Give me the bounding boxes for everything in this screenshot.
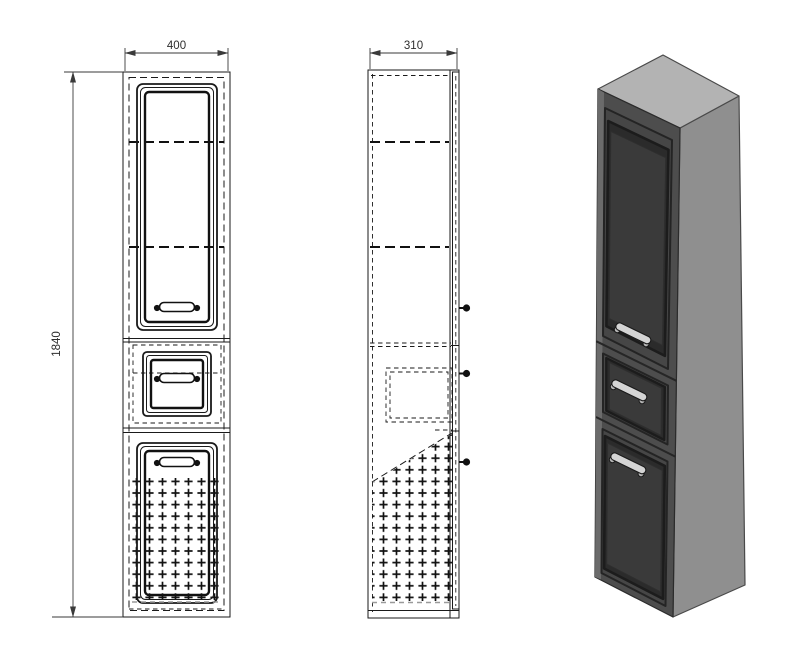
- technical-drawing-canvas: 400 310 1840: [0, 0, 800, 665]
- dim-height-label: 1840: [51, 331, 63, 357]
- knob-ball: [463, 304, 470, 311]
- perspective-top-door: [603, 108, 672, 369]
- handle-grip: [160, 303, 195, 312]
- drawer-panel-recess: [151, 360, 203, 408]
- door-panel: [609, 131, 666, 345]
- basket-handle: [154, 458, 200, 467]
- handle-grip: [160, 374, 195, 383]
- handle-grip: [160, 458, 195, 467]
- side-drawer-hidden-box-inner: [390, 372, 448, 418]
- side-drawer-hidden-box-outer: [386, 368, 452, 422]
- front-drawer: [133, 345, 221, 423]
- side-handle-knob-drawer: [459, 370, 470, 377]
- door-handle: [154, 303, 200, 312]
- door-panel-recess: [145, 92, 209, 322]
- side-basket-weave-pattern: [372, 434, 452, 601]
- door-frame-mid: [141, 88, 214, 327]
- dimension-width: 400: [125, 40, 228, 71]
- dimension-height: 1840: [51, 72, 123, 617]
- door-frame-outer: [137, 84, 217, 330]
- side-view: [368, 70, 470, 618]
- perspective-view: [595, 55, 745, 617]
- front-view: [123, 72, 230, 617]
- dim-depth-label: 310: [404, 40, 423, 52]
- side-handle-knob-door: [459, 304, 470, 311]
- drawer-frame-mid: [147, 356, 208, 413]
- drawer-handle: [154, 374, 200, 383]
- knob-ball: [463, 370, 470, 377]
- knob-ball: [463, 458, 470, 465]
- drawer-frame-outer: [143, 352, 211, 416]
- dimension-depth: 310: [370, 40, 457, 69]
- drawing-sheet: 400 310 1840: [0, 0, 800, 665]
- front-bottom-door: [129, 443, 224, 609]
- front-top-door: [137, 84, 217, 330]
- side-handle-knob-basket: [459, 458, 470, 465]
- dim-width-label: 400: [167, 40, 186, 52]
- cabinet-side-face: [673, 96, 745, 617]
